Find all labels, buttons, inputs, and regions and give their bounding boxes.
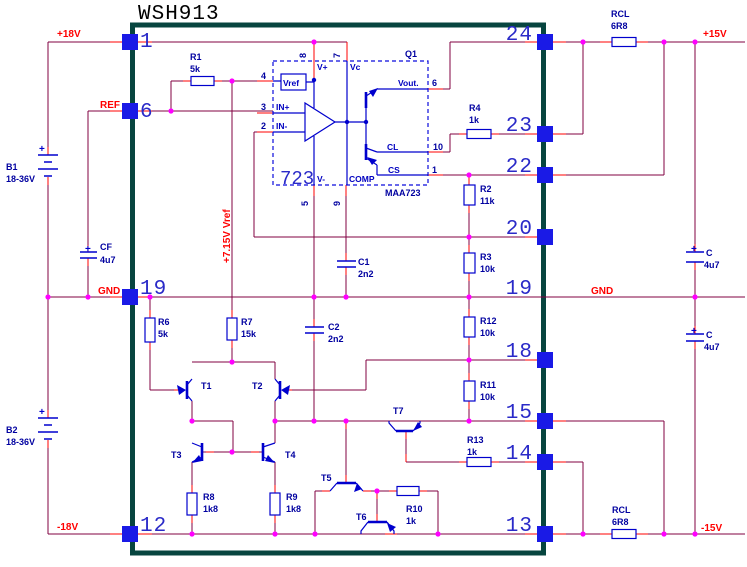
ic-pin-7: 7: [332, 53, 342, 58]
value-C2: 2n2: [328, 334, 344, 344]
pin-20: 20: [506, 218, 533, 241]
value-R3: 10k: [480, 264, 496, 274]
label-R10: R10: [406, 504, 423, 514]
pin-19-left: 19: [140, 278, 167, 301]
label-R9: R9: [286, 492, 298, 502]
ic-label-vout: Vout.: [398, 78, 419, 88]
ic-pin-9: 9: [332, 201, 342, 206]
transistor-T1: [177, 379, 192, 401]
module-outline: [133, 25, 544, 553]
pin-22: 22: [506, 156, 533, 179]
pin-1: 1: [140, 31, 154, 54]
value-R8: 1k8: [203, 504, 218, 514]
transistor-T2: [275, 379, 290, 401]
ic-723-text: Q1 MAA723 723 Vref V+ Vc IN+ IN- V- COMP…: [261, 49, 443, 206]
transistor-T7: [389, 421, 422, 431]
ic-pin-2: 2: [261, 121, 266, 131]
label-B2: B2: [6, 425, 18, 435]
value-R4: 1k: [469, 115, 480, 125]
resistor-R6: [145, 318, 155, 342]
transistor-T4: [263, 443, 275, 463]
resistor-R7: [227, 318, 237, 340]
label-T7: T7: [393, 406, 404, 416]
ic-pin-1: 1: [432, 165, 437, 175]
resistor-R4: [467, 130, 491, 139]
resistor-R13: [467, 458, 491, 467]
plus-B2: +: [39, 407, 45, 418]
pin-19-right: 19: [506, 278, 533, 301]
battery-B2: [38, 418, 58, 439]
plus-CF: +: [85, 244, 91, 255]
net-minus15v: -15V: [701, 523, 722, 534]
transistor-T5: [330, 483, 363, 492]
resistor-R8: [187, 493, 197, 515]
net-minus18v: -18V: [57, 522, 78, 533]
ic-label-vref: Vref: [283, 78, 299, 88]
ic-label-inn: IN-: [276, 121, 288, 131]
ic-pin-10: 10: [433, 142, 443, 152]
pin-13: 13: [506, 515, 533, 538]
schematic-canvas: WSH913 +18V REF GND -18V +15V GND -15V +…: [0, 0, 747, 567]
ic-label-cl: CL: [387, 142, 398, 152]
resistor-R2: [464, 185, 475, 205]
opamp-triangle: [305, 103, 335, 141]
value-R11: 10k: [480, 392, 496, 402]
schematic-page: WSH913 +18V REF GND -18V +15V GND -15V +…: [0, 0, 747, 567]
pad-6: [122, 103, 138, 119]
pin-24: 24: [506, 24, 533, 47]
value-R10: 1k: [406, 516, 417, 526]
schematic-title: WSH913: [138, 3, 220, 26]
ic-pin-8: 8: [298, 53, 308, 58]
value-RCL-top: 6R8: [611, 21, 628, 31]
component-labels: R1 5k R2 11k R3 10k R4 1k R6 5k R7 15k R…: [6, 9, 720, 527]
label-C2: C2: [328, 322, 340, 332]
value-CF: 4u7: [100, 255, 116, 265]
pad-14: [537, 454, 553, 470]
pad-18: [537, 352, 553, 368]
value-R9: 1k8: [286, 504, 301, 514]
value-R2: 11k: [480, 196, 496, 206]
value-R1: 5k: [190, 64, 201, 74]
resistor-R11: [464, 381, 475, 401]
label-R8: R8: [203, 492, 215, 502]
pin-15: 15: [506, 402, 533, 425]
label-R2: R2: [480, 184, 492, 194]
pin-6: 6: [140, 101, 154, 124]
pad-1: [122, 34, 138, 50]
net-gnd-left: GND: [98, 286, 120, 297]
value-R13: 1k: [467, 447, 478, 457]
pad-15: [537, 413, 553, 429]
pad-20: [537, 229, 553, 245]
value-R12: 10k: [480, 328, 496, 338]
transistor-T6: [361, 522, 396, 534]
label-T5: T5: [321, 473, 332, 483]
ic-label-vc: Vc: [350, 62, 361, 72]
label-T2: T2: [252, 381, 263, 391]
pin-14: 14: [506, 443, 533, 466]
ic-pin-4: 4: [261, 71, 266, 81]
label-R12: R12: [480, 316, 497, 326]
pad-22: [537, 167, 553, 183]
net-plus18v: +18V: [57, 29, 81, 40]
resistors: [145, 38, 636, 539]
label-MAA723: MAA723: [385, 188, 421, 198]
pin-23: 23: [506, 115, 533, 138]
value-B1: 18-36V: [6, 174, 35, 184]
label-T1: T1: [201, 381, 212, 391]
label-R3: R3: [480, 252, 492, 262]
label-C-top: C: [706, 248, 713, 258]
resistor-R12: [464, 317, 475, 337]
label-C-bottom: C: [706, 330, 713, 340]
label-T3: T3: [171, 450, 182, 460]
transistor-T3: [192, 443, 202, 463]
label-R13: R13: [467, 435, 484, 445]
pin-12: 12: [140, 515, 167, 538]
pad-12: [122, 526, 138, 542]
ic-label-vplus: V+: [317, 62, 328, 72]
pin-18: 18: [506, 341, 533, 364]
value-C-bottom: 4u7: [704, 342, 720, 352]
label-723: 723: [280, 168, 314, 190]
ic-pin-6: 6: [432, 78, 437, 88]
ic-label-inp: IN+: [276, 102, 290, 112]
label-R11: R11: [480, 380, 496, 390]
pad-13: [537, 526, 553, 542]
label-C1: C1: [358, 257, 370, 267]
pad-19: [122, 289, 138, 305]
resistor-R10: [397, 487, 419, 496]
label-R4: R4: [469, 103, 481, 113]
resistor-RCL-bottom: [612, 530, 636, 539]
label-B1: B1: [6, 162, 18, 172]
label-RCL-bottom: RCL: [612, 505, 631, 515]
label-R1: R1: [190, 52, 202, 62]
pad-23: [537, 126, 553, 142]
ic-label-cs: CS: [388, 165, 400, 175]
pad-24: [537, 34, 553, 50]
label-R7: R7: [241, 317, 253, 327]
resistor-R1: [191, 77, 214, 86]
capacitor-C2: [305, 327, 324, 333]
resistor-R3: [464, 253, 475, 273]
battery-B1: [38, 155, 58, 176]
net-gnd-right: GND: [591, 286, 613, 297]
net-vref-rail: +7.15V Vref: [222, 209, 233, 263]
label-T6: T6: [356, 512, 367, 522]
net-ref: REF: [100, 100, 120, 111]
value-B2: 18-36V: [6, 437, 35, 447]
resistor-RCL-top: [612, 38, 636, 47]
ic-pin-3: 3: [261, 102, 266, 112]
plus-C-top: +: [691, 244, 697, 255]
label-Q1: Q1: [405, 49, 417, 59]
value-RCL-bottom: 6R8: [612, 517, 629, 527]
npn-arrow-pass: [369, 88, 378, 97]
value-C-top: 4u7: [704, 260, 720, 270]
label-CF: CF: [100, 242, 112, 252]
value-R6: 5k: [158, 329, 169, 339]
label-RCL-top: RCL: [611, 9, 630, 19]
net-plus15v: +15V: [703, 29, 727, 40]
ic-label-vminus: V-: [317, 174, 325, 184]
value-R7: 15k: [241, 329, 257, 339]
label-T4: T4: [285, 450, 296, 460]
plus-C-bottom: +: [691, 326, 697, 337]
plus-B1: +: [39, 144, 45, 155]
resistor-R9: [270, 493, 280, 515]
ic-label-comp: COMP: [349, 174, 375, 184]
ic-pin-5: 5: [300, 201, 310, 206]
label-R6: R6: [158, 317, 170, 327]
capacitor-C1: [337, 261, 356, 267]
value-C1: 2n2: [358, 269, 374, 279]
